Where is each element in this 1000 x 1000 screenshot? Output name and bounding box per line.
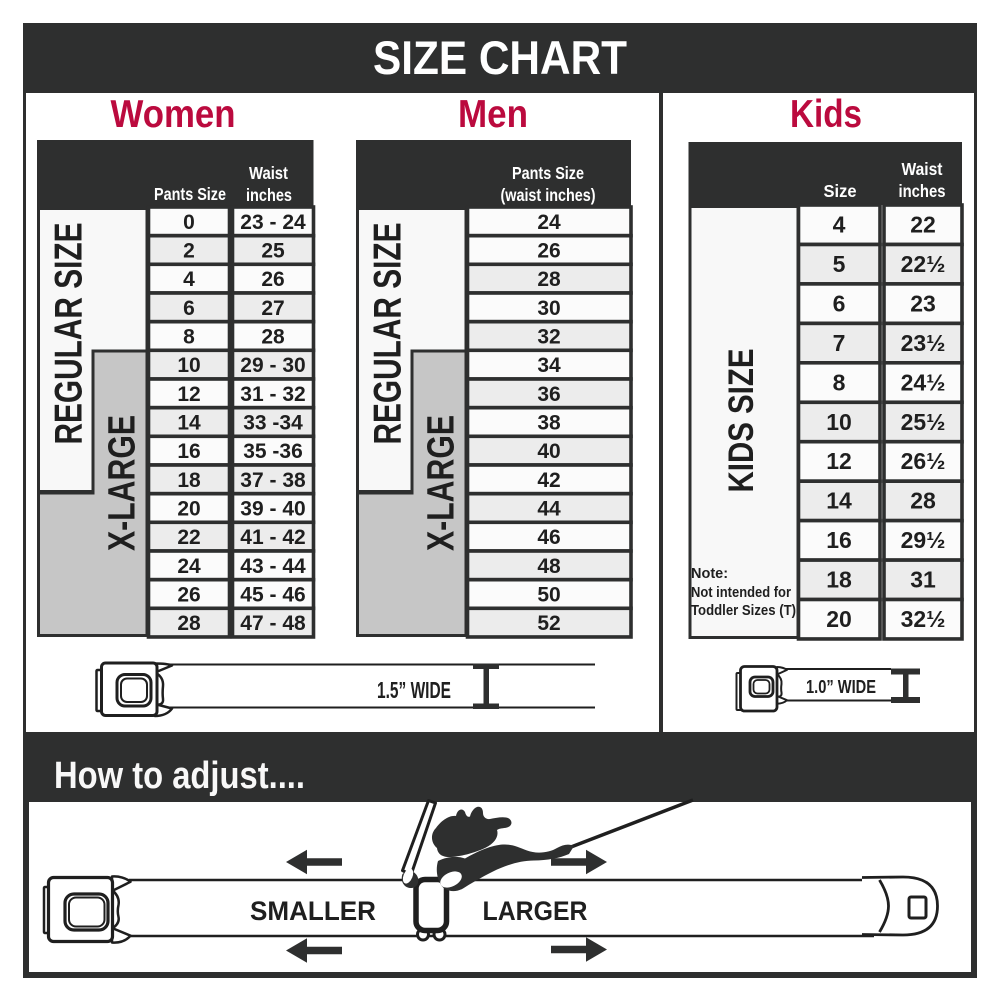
svg-text:16: 16	[826, 527, 852, 553]
svg-text:4: 4	[833, 212, 846, 238]
svg-text:30: 30	[537, 297, 560, 320]
svg-text:Waist: Waist	[249, 163, 288, 183]
svg-text:32: 32	[537, 325, 560, 348]
svg-text:Note:: Note:	[691, 566, 728, 582]
svg-text:1.0” WIDE: 1.0” WIDE	[806, 676, 876, 697]
svg-text:Not intended for: Not intended for	[691, 585, 791, 601]
svg-text:26: 26	[537, 239, 560, 262]
svg-text:inches: inches	[899, 181, 946, 201]
svg-text:26½: 26½	[901, 448, 946, 474]
svg-text:Men: Men	[458, 93, 528, 136]
svg-text:SIZE CHART: SIZE CHART	[373, 31, 627, 84]
svg-text:REGULAR SIZE: REGULAR SIZE	[367, 223, 410, 445]
svg-text:22: 22	[177, 526, 200, 549]
svg-text:26: 26	[177, 583, 200, 606]
svg-text:20: 20	[177, 497, 200, 520]
svg-text:6: 6	[183, 297, 195, 320]
svg-text:36: 36	[537, 383, 560, 406]
svg-text:10: 10	[177, 354, 200, 377]
svg-text:46: 46	[537, 526, 560, 549]
svg-text:23: 23	[910, 290, 936, 316]
svg-text:LARGER: LARGER	[483, 896, 588, 926]
svg-text:41 - 42: 41 - 42	[240, 526, 305, 549]
svg-text:25: 25	[261, 239, 285, 262]
svg-text:10: 10	[826, 409, 852, 435]
svg-text:31 - 32: 31 - 32	[240, 383, 305, 406]
svg-text:31: 31	[910, 567, 936, 593]
svg-text:23 - 24: 23 - 24	[240, 211, 306, 234]
svg-text:25½: 25½	[901, 409, 946, 435]
svg-text:33 -34: 33 -34	[243, 411, 303, 434]
svg-text:44: 44	[537, 497, 561, 520]
svg-text:Pants Size: Pants Size	[154, 184, 226, 204]
svg-text:8: 8	[833, 369, 846, 395]
svg-text:38: 38	[537, 411, 561, 434]
svg-text:Waist: Waist	[902, 159, 943, 179]
svg-text:23½: 23½	[901, 330, 946, 356]
svg-text:12: 12	[826, 448, 852, 474]
svg-text:48: 48	[537, 555, 561, 578]
svg-text:37 - 38: 37 - 38	[240, 469, 306, 492]
svg-text:42: 42	[537, 469, 560, 492]
svg-text:How to adjust....: How to adjust....	[54, 755, 305, 797]
svg-text:47 - 48: 47 - 48	[240, 612, 306, 635]
svg-text:26: 26	[261, 268, 284, 291]
svg-text:REGULAR SIZE: REGULAR SIZE	[48, 223, 91, 445]
svg-text:40: 40	[537, 440, 560, 463]
svg-text:8: 8	[183, 325, 195, 348]
svg-text:32½: 32½	[901, 606, 946, 632]
svg-text:6: 6	[833, 290, 846, 316]
svg-text:20: 20	[826, 606, 852, 632]
svg-text:43 - 44: 43 - 44	[240, 555, 306, 578]
svg-text:28: 28	[537, 268, 561, 291]
svg-text:inches: inches	[246, 185, 292, 205]
svg-text:X-LARGE: X-LARGE	[102, 415, 144, 551]
svg-text:28: 28	[910, 488, 936, 514]
svg-text:4: 4	[183, 268, 195, 291]
svg-text:18: 18	[826, 567, 852, 593]
svg-text:27: 27	[261, 297, 284, 320]
svg-text:45 - 46: 45 - 46	[240, 583, 305, 606]
svg-text:29 - 30: 29 - 30	[240, 354, 305, 377]
svg-text:24: 24	[537, 211, 561, 234]
svg-text:16: 16	[177, 440, 200, 463]
svg-text:1.5” WIDE: 1.5” WIDE	[377, 677, 451, 703]
svg-text:14: 14	[826, 488, 852, 514]
svg-text:39 - 40: 39 - 40	[240, 497, 305, 520]
svg-text:35 -36: 35 -36	[243, 440, 303, 463]
svg-text:29½: 29½	[901, 527, 946, 553]
svg-text:52: 52	[537, 612, 560, 635]
svg-text:7: 7	[833, 330, 846, 356]
svg-text:50: 50	[537, 583, 560, 606]
svg-text:Women: Women	[111, 93, 236, 136]
svg-text:Size: Size	[824, 181, 857, 201]
svg-text:24: 24	[177, 555, 201, 578]
svg-text:18: 18	[177, 469, 201, 492]
svg-text:KIDS SIZE: KIDS SIZE	[722, 349, 761, 493]
svg-text:Pants Size: Pants Size	[512, 163, 584, 183]
svg-text:2: 2	[183, 239, 195, 262]
svg-text:14: 14	[177, 411, 201, 434]
svg-text:0: 0	[183, 211, 195, 234]
svg-text:22: 22	[910, 212, 936, 238]
svg-text:22½: 22½	[901, 251, 946, 277]
svg-text:34: 34	[537, 354, 561, 377]
svg-text:24½: 24½	[901, 369, 946, 395]
svg-text:(waist inches): (waist inches)	[501, 185, 596, 205]
svg-text:SMALLER: SMALLER	[250, 896, 376, 926]
svg-text:5: 5	[833, 251, 846, 277]
svg-text:28: 28	[261, 325, 285, 348]
svg-text:Toddler Sizes (T): Toddler Sizes (T)	[691, 603, 796, 619]
svg-text:28: 28	[177, 612, 201, 635]
svg-text:12: 12	[177, 383, 200, 406]
svg-text:Kids: Kids	[790, 93, 862, 136]
svg-text:X-LARGE: X-LARGE	[421, 415, 463, 551]
